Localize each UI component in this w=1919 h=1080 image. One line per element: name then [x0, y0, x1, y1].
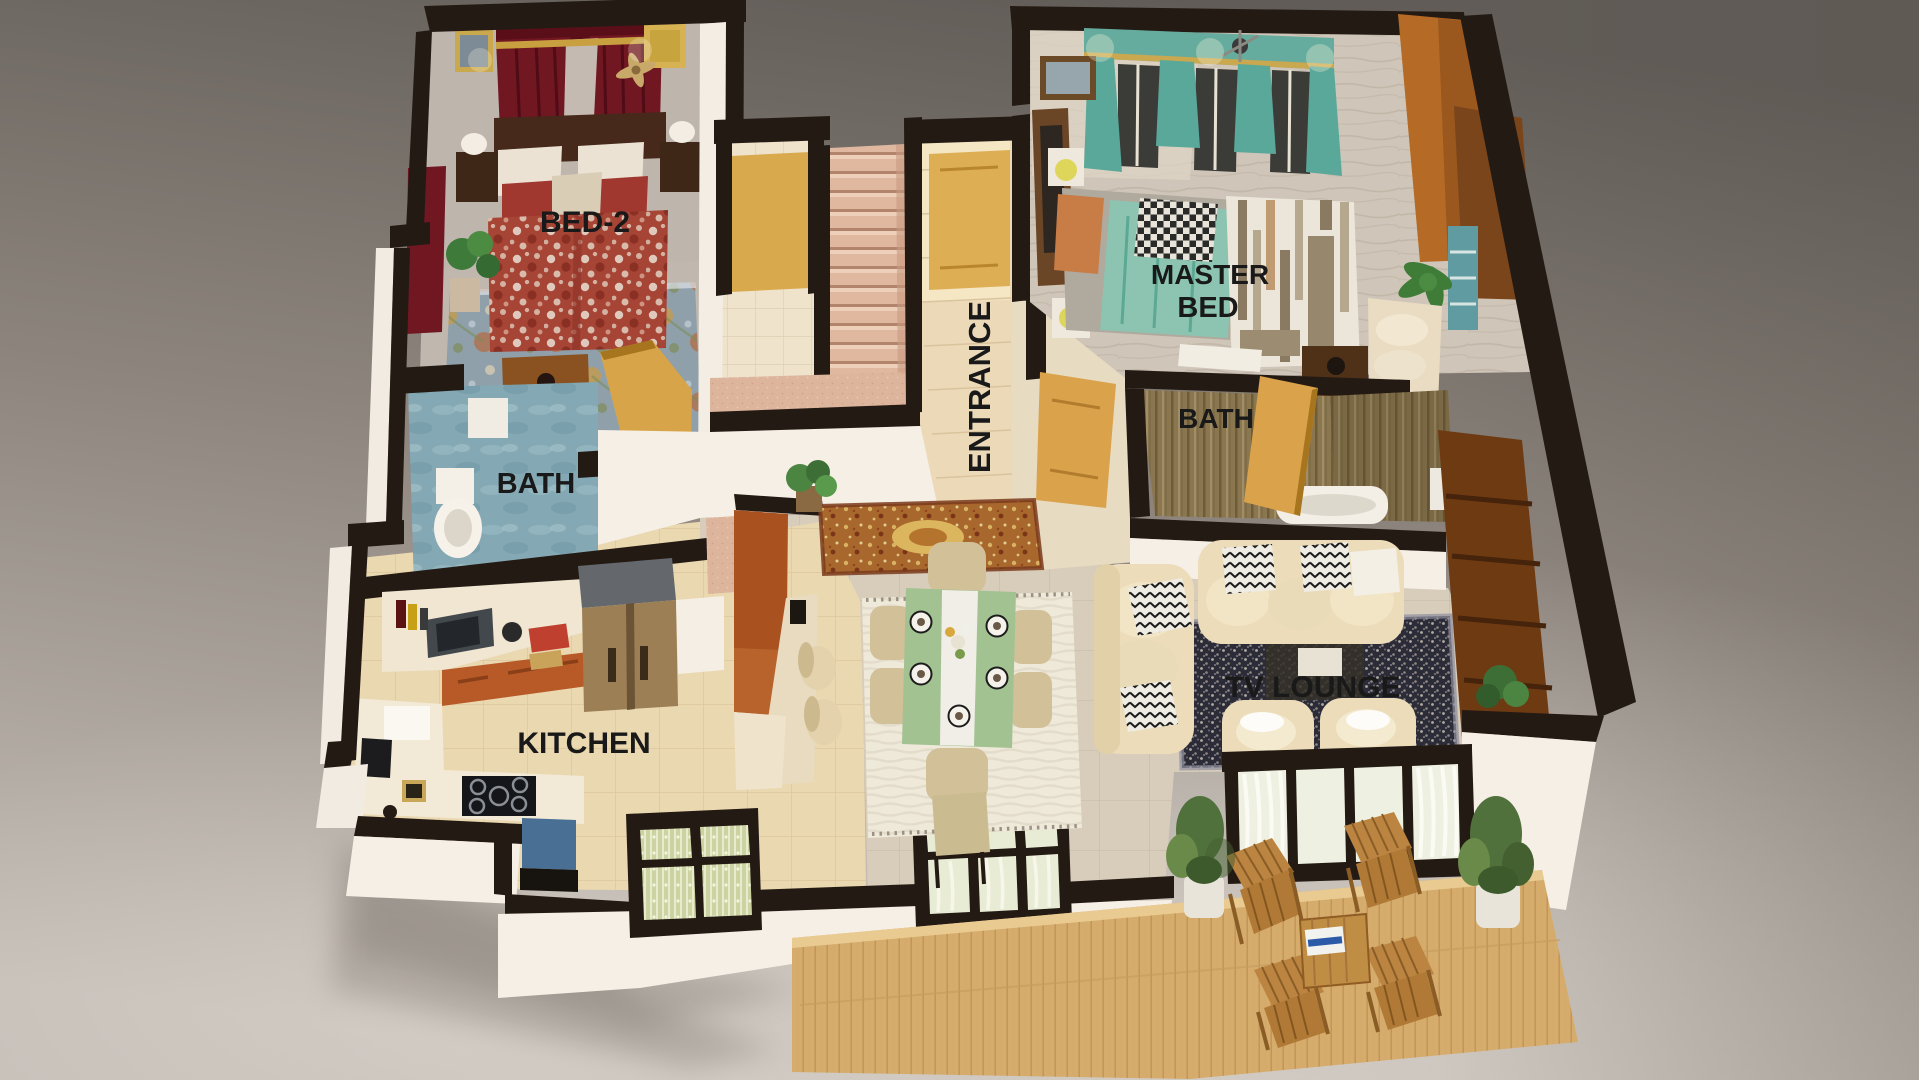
svg-text:KITCHEN: KITCHEN [517, 727, 650, 760]
svg-text:ENTRANCE: ENTRANCE [962, 301, 997, 473]
svg-text:BED-2: BED-2 [540, 206, 630, 239]
svg-text:BATH: BATH [1178, 403, 1254, 434]
svg-text:BATH: BATH [497, 468, 575, 500]
svg-text:MASTER: MASTER [1151, 259, 1269, 290]
svg-text:BED: BED [1177, 292, 1238, 324]
svg-text:TV LOUNGE: TV LOUNGE [1225, 671, 1400, 704]
